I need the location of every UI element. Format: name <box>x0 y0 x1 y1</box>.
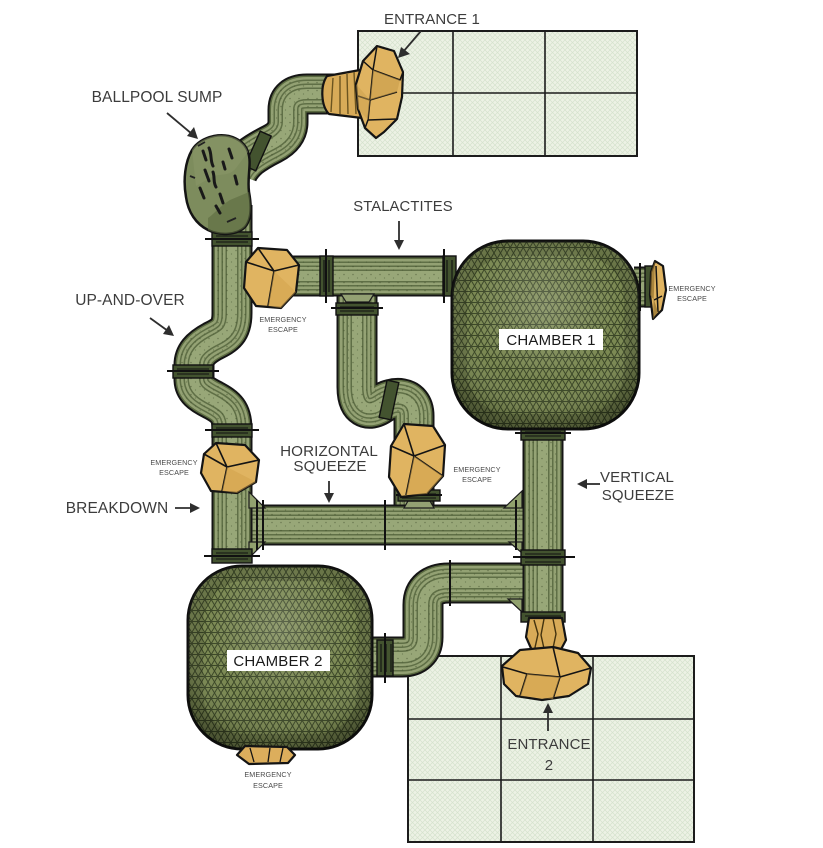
svg-text:ESCAPE: ESCAPE <box>677 294 707 303</box>
svg-text:UP-AND-OVER: UP-AND-OVER <box>75 292 185 309</box>
svg-text:ENTRANCE 1: ENTRANCE 1 <box>384 11 480 28</box>
svg-text:ENTRANCE: ENTRANCE <box>507 736 590 753</box>
svg-text:VERTICAL: VERTICAL <box>600 469 674 486</box>
svg-text:EMERGENCY: EMERGENCY <box>453 465 500 474</box>
svg-text:SQUEEZE: SQUEEZE <box>293 458 366 475</box>
svg-text:ESCAPE: ESCAPE <box>253 781 283 790</box>
svg-text:EMERGENCY: EMERGENCY <box>150 458 197 467</box>
svg-text:BREAKDOWN: BREAKDOWN <box>66 500 169 517</box>
svg-text:BALLPOOL SUMP: BALLPOOL SUMP <box>92 89 223 106</box>
svg-text:SQUEEZE: SQUEEZE <box>602 487 674 504</box>
svg-text:ESCAPE: ESCAPE <box>462 475 492 484</box>
svg-text:ESCAPE: ESCAPE <box>268 325 298 334</box>
svg-text:ESCAPE: ESCAPE <box>159 468 189 477</box>
svg-text:STALACTITES: STALACTITES <box>353 199 453 215</box>
svg-text:EMERGENCY: EMERGENCY <box>259 315 306 324</box>
svg-text:EMERGENCY: EMERGENCY <box>244 770 291 779</box>
svg-text:CHAMBER 1: CHAMBER 1 <box>506 332 595 349</box>
svg-text:2: 2 <box>545 757 553 774</box>
svg-text:EMERGENCY: EMERGENCY <box>668 284 715 293</box>
svg-text:CHAMBER 2: CHAMBER 2 <box>233 653 322 670</box>
